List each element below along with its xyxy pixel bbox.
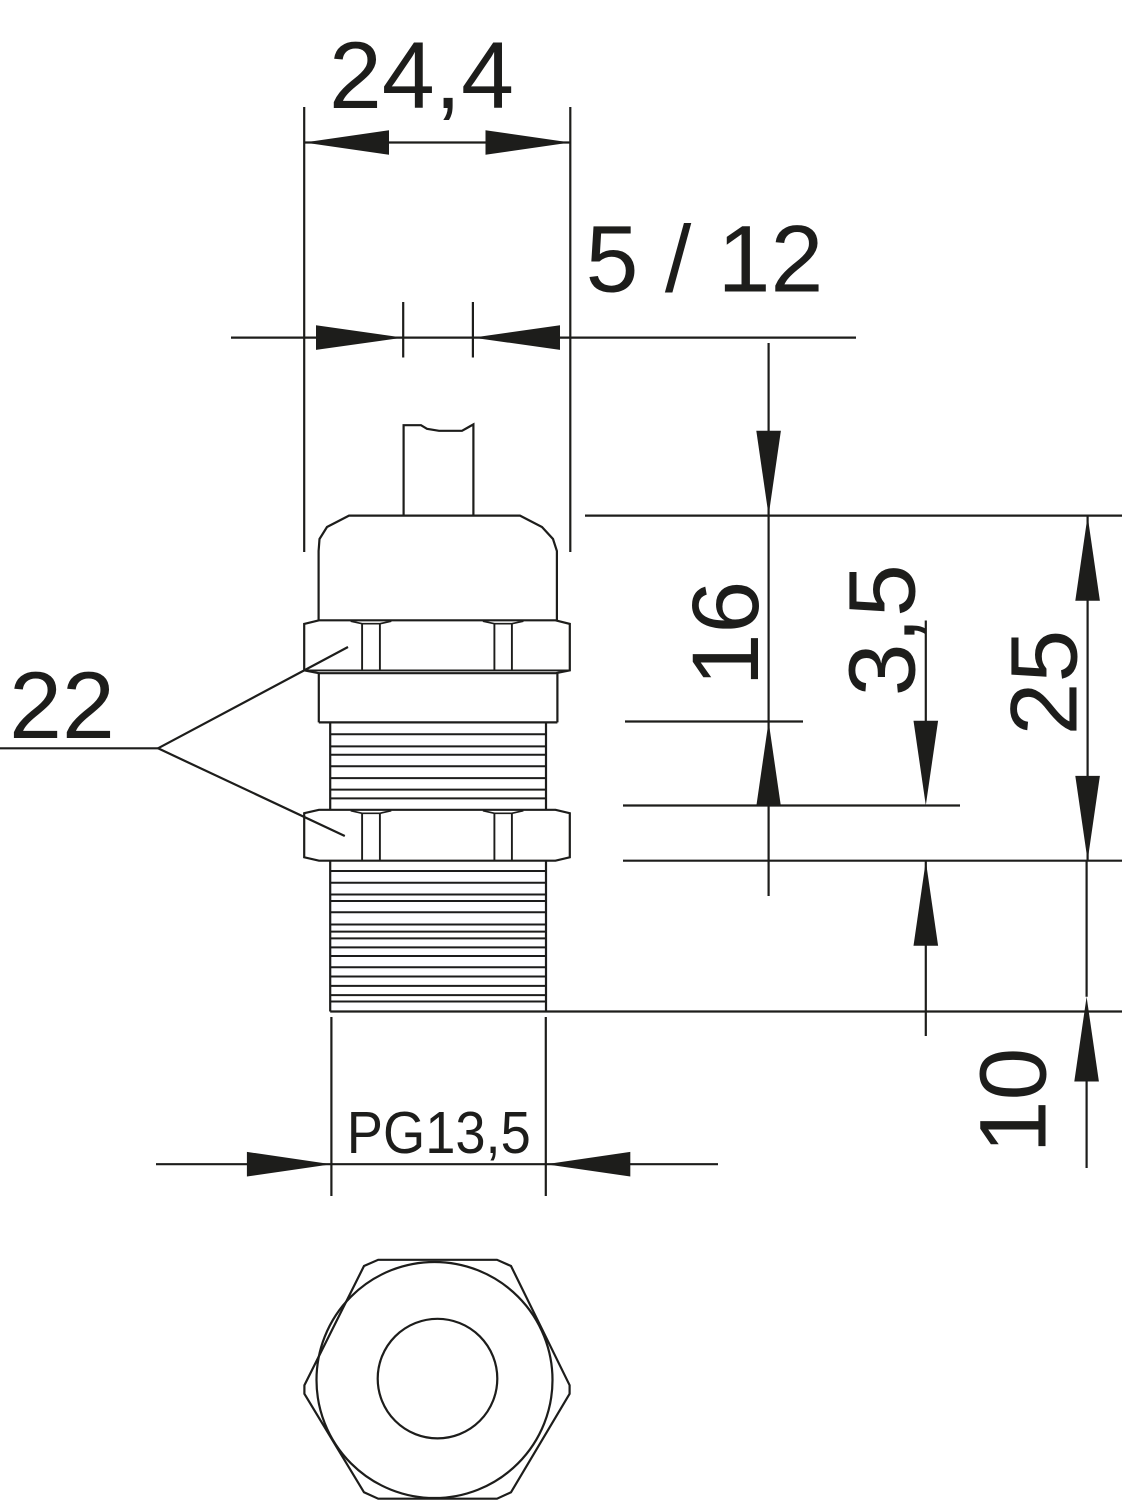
svg-text:10: 10: [961, 1048, 1067, 1154]
svg-text:22: 22: [9, 653, 115, 759]
svg-text:24,4: 24,4: [329, 23, 514, 129]
svg-text:25: 25: [991, 630, 1097, 736]
svg-text:5 / 12: 5 / 12: [586, 206, 824, 312]
svg-text:3,5: 3,5: [829, 564, 935, 696]
svg-text:16: 16: [673, 581, 779, 687]
svg-text:PG13,5: PG13,5: [347, 1099, 531, 1166]
